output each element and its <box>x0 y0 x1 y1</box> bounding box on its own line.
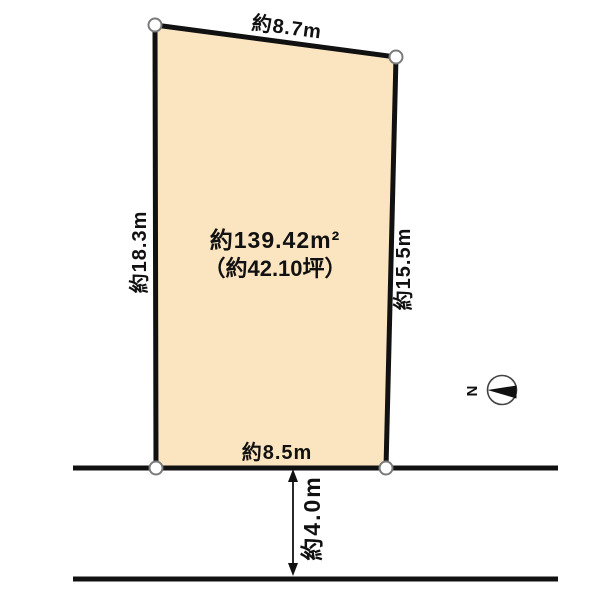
dimension-right-label: 約15.5m <box>391 228 415 311</box>
boundary-marker-bottom-right <box>380 462 393 475</box>
compass: N <box>463 376 517 405</box>
road-width-label: 約4.0m <box>299 475 325 560</box>
compass-north-label: N <box>463 386 480 397</box>
boundary-marker-top-right <box>390 51 403 64</box>
arrow-head-up-icon <box>288 469 298 482</box>
boundary-marker-bottom-left <box>150 462 163 475</box>
arrow-head-down-icon <box>288 563 298 576</box>
site-plan-svg: N 約8.7m 約18.3m 約15.5m 約8.5m 約139.42m² （約… <box>0 0 600 599</box>
dimension-bottom-label: 約8.5m <box>242 440 313 464</box>
area-square-meters-label: 約139.42m² <box>210 227 340 253</box>
boundary-marker-top-left <box>149 19 162 32</box>
dimension-left-label: 約18.3m <box>127 211 151 294</box>
land-plot-diagram: N 約8.7m 約18.3m 約15.5m 約8.5m 約139.42m² （約… <box>0 0 600 599</box>
road-width-arrow <box>288 469 298 576</box>
area-tsubo-label: （約42.10坪） <box>203 256 346 281</box>
